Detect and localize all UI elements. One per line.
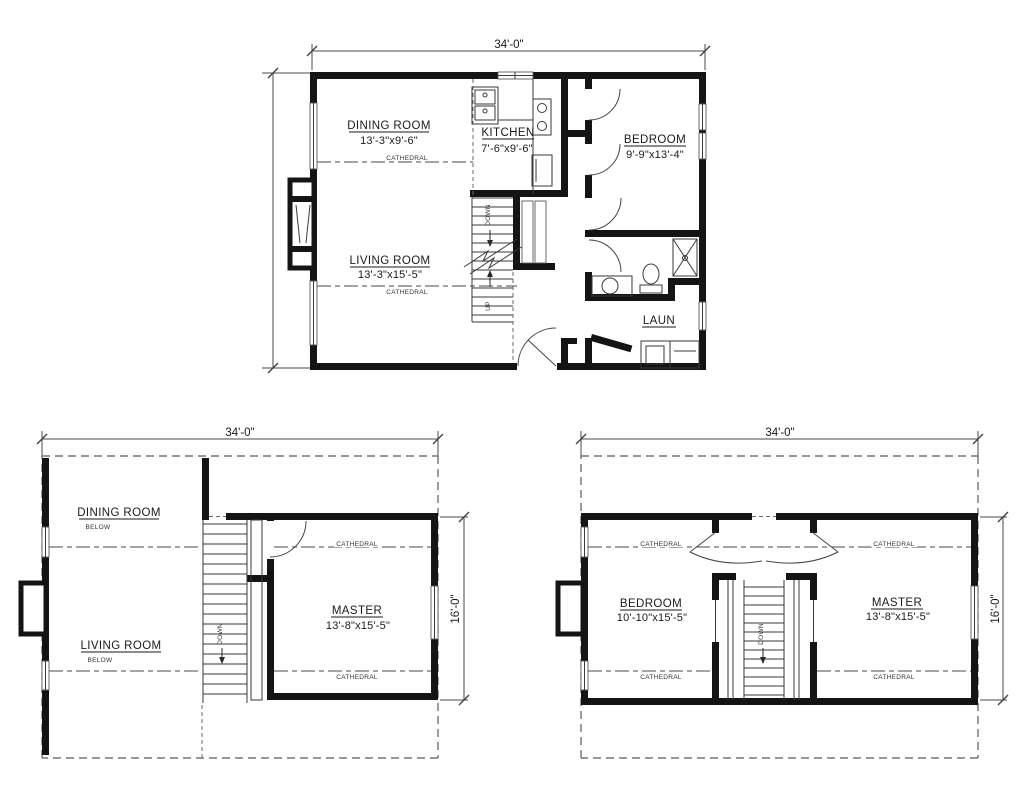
shower-icon <box>673 239 697 276</box>
stairs: DOWN <box>728 580 799 700</box>
closet-door-arc <box>589 89 620 120</box>
vanity-sink-icon <box>592 276 632 296</box>
upper-floor-plan-a: 34'-0" 16'-0" <box>21 427 469 758</box>
room-size-master: 13'-8"x15'-5" <box>326 620 390 632</box>
room-label-master: MASTER <box>332 605 382 617</box>
entry-opening <box>517 363 557 370</box>
room-label-dining: DINING ROOM <box>77 507 161 519</box>
stairs-down-label: DOWN <box>758 623 765 645</box>
windows <box>310 72 706 345</box>
chimney-icon <box>21 583 46 634</box>
room-size-kitchen: 7'-6"x9'-6" <box>481 143 533 155</box>
cathedral-note: CATHEDRAL <box>386 289 428 296</box>
room-label-master: MASTER <box>872 597 922 609</box>
floor-plan-sheet: 34'-0" 26'-0" <box>0 0 1024 791</box>
fireplace-icon <box>290 180 314 268</box>
dimension-top: 34'-0" <box>307 39 710 70</box>
cathedral-note: CATHEDRAL <box>640 674 682 681</box>
room-labels: BEDROOM 10'-10"x15'-5" MASTER 13'-8"x15'… <box>617 597 930 624</box>
room-labels: DINING ROOM BELOW LIVING ROOM BELOW MAST… <box>77 507 390 664</box>
cathedral-note: CATHEDRAL <box>336 674 378 681</box>
master-door-arc <box>270 521 306 557</box>
dim-height-label: 16'-0" <box>990 594 1002 623</box>
cathedral-note: CATHEDRAL <box>640 541 682 548</box>
stairs-down-label: DOWN <box>217 623 224 645</box>
dim-height-label: 16'-0" <box>450 594 462 623</box>
bedroom-door-arc <box>589 198 621 230</box>
room-label-bedroom: BEDROOM <box>624 134 686 146</box>
master-door-arc <box>766 552 838 563</box>
main-floor-plan: 34'-0" 26'-0" <box>262 39 710 373</box>
room-label-living: LIVING ROOM <box>80 640 161 652</box>
room-note-dining: BELOW <box>86 524 112 531</box>
room-label-living: LIVING ROOM <box>349 255 430 267</box>
stairs-up-label: UP <box>485 301 492 311</box>
dimension-right: 16'-0" <box>440 512 469 705</box>
toilet-icon <box>640 264 662 293</box>
room-size-bedroom: 9'-9"x13'-4" <box>626 149 684 161</box>
laundry-door <box>590 334 632 352</box>
down-arrow-icon <box>219 657 225 664</box>
dim-width-label: 34'-0" <box>494 39 523 51</box>
closet-door-arc <box>589 144 620 175</box>
dimension-top: 34'-0" <box>576 427 983 456</box>
bath-door-arc <box>589 240 621 272</box>
up-arrow-icon <box>487 270 493 277</box>
stairs-down-label: DOWN <box>485 204 492 226</box>
cathedral-note: CATHEDRAL <box>873 674 915 681</box>
room-size-living: 13'-3"x15'-5" <box>358 269 422 281</box>
upper-floor-plan-b: 34'-0" 16'-0" <box>558 427 1008 758</box>
floor-plans-drawing: 34'-0" 26'-0" <box>0 0 1024 791</box>
room-note-living: BELOW <box>88 657 114 664</box>
kitchen-sink-icon <box>472 87 498 124</box>
cathedral-note: CATHEDRAL <box>873 541 915 548</box>
chimney-icon <box>558 583 583 634</box>
refrigerator-icon <box>532 155 552 186</box>
room-label-kitchen: KITCHEN <box>481 127 534 139</box>
cathedral-note: CATHEDRAL <box>336 541 378 548</box>
room-label-dining: DINING ROOM <box>347 120 431 132</box>
cathedral-note: CATHEDRAL <box>386 155 428 162</box>
dim-width-label: 34'-0" <box>765 427 794 439</box>
closet-bifold-doors <box>522 201 546 263</box>
bedroom-door-arc <box>690 552 762 563</box>
dimension-top: 34'-0" <box>37 427 443 456</box>
room-size-master: 13'-8"x15'-5" <box>866 611 930 623</box>
stairs: DOWN <box>202 520 262 758</box>
down-arrow-icon <box>760 657 766 664</box>
room-size-bedroom: 10'-10"x15'-5" <box>617 612 687 624</box>
dimension-right: 16'-0" <box>980 512 1008 705</box>
door-arcs <box>690 532 838 563</box>
room-size-dining: 13'-3"x9'-6" <box>360 135 418 147</box>
room-label-bedroom: BEDROOM <box>620 598 682 610</box>
dim-width-label: 34'-0" <box>225 427 254 439</box>
room-label-laundry: LAUN <box>643 315 675 327</box>
